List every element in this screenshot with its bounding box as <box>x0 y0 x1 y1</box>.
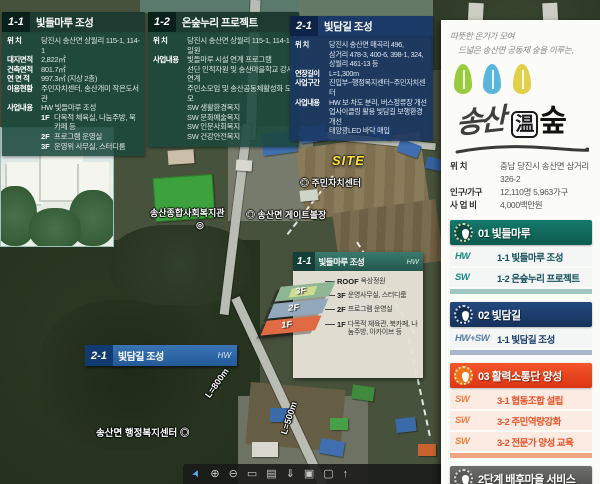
building <box>168 149 195 165</box>
share-icon[interactable]: ↑ <box>343 469 349 480</box>
map-marker-icon: ◎ <box>196 220 204 231</box>
blue-tree-icon <box>483 64 501 94</box>
panel-1-2: 1-2 온숲누리 프로젝트 위 치당진시 송산면 상월리 115-1, 114-… <box>148 12 299 147</box>
section-01: 01 빛들마루 HW 1-1 빛들마루 조성 SW 1-2 온숲누리 프로젝트 <box>450 220 592 294</box>
panel-number: 1-1 <box>2 12 30 32</box>
info-row-population: 인구/가구 12,110명 5,963가구 <box>450 186 592 199</box>
tree-logo-icons <box>454 64 592 96</box>
map-bar-2-1: 2-1 빛담길 조성 HW <box>85 345 237 366</box>
map-marker-icon: ◎ <box>246 210 255 220</box>
section-divider <box>450 350 592 355</box>
logo-on-character: 温 <box>511 111 538 138</box>
image-icon[interactable]: ▣ <box>304 469 314 480</box>
map-marker-icon: ◎ <box>300 178 309 188</box>
summary-sidebar: 따뜻한 온기가 모여 드넓은 송산면 공동체 숲을 이루는, 송산 温 숲 위 … <box>441 20 600 484</box>
section-01-header: 01 빛들마루 <box>450 220 592 245</box>
songsan-onsup-logo: 송산 温 숲 <box>456 96 592 140</box>
section-divider <box>450 453 592 458</box>
panel-title: 빛들마루 조성 <box>30 12 145 32</box>
yellow-tree-icon <box>513 64 531 94</box>
section-02-header: 02 빛담길 <box>450 302 592 327</box>
village-area <box>298 0 433 16</box>
popup-number: 1-1 <box>293 252 315 271</box>
logo-underline-swash <box>454 142 592 160</box>
leaf-drop-badge-icon <box>454 223 473 242</box>
panel-title: 빛담길 조성 <box>318 16 433 36</box>
photo-building <box>41 150 83 200</box>
zoom-in-icon[interactable]: ⊕ <box>210 469 219 480</box>
section-stage2-header: 2단계 배후마을 서비스 <box>450 466 592 484</box>
logo-sup-character: 숲 <box>539 96 565 140</box>
save-icon[interactable]: ⇓ <box>286 469 295 480</box>
section-03-header: 03 활력소통단 양성 <box>450 363 592 388</box>
tagline-line1: 따뜻한 온기가 모여 <box>450 30 592 42</box>
flame-badge-icon <box>454 366 473 385</box>
building <box>330 418 348 430</box>
section-row: HW 1-1 빛들마루 조성 <box>450 247 592 266</box>
map-marker-icon: ◎ <box>180 428 190 439</box>
info-row-location: 위 치 충남 당진시 송산면 삼거리 326-2 <box>450 160 592 186</box>
plan-poster: SITE ◎ 주민자치센터 송산종합사회복지관 ◎ ◎ 송산면 게이트볼장 송산… <box>0 0 600 484</box>
panel-number: 2-1 <box>290 16 318 36</box>
floor-row: 1F 다목적 체육관, 북카페, 나눔주방, 아카이브 등 <box>325 321 420 337</box>
panel-body: 위 치당진시 송산면 매곡리 496, 삼거리 478-3, 400-6, 39… <box>290 36 433 141</box>
image-viewer-toolbar[interactable]: ➤ ⊕ ⊖ ▭ ▤ ⇓ ▣ ▢ ↑ <box>183 464 465 484</box>
section-divider <box>450 289 592 294</box>
section-02: 02 빛담길 HW+SW 1-1 빛담길 조성 <box>450 302 592 355</box>
flame-badge-icon <box>454 469 473 484</box>
label-gateball-field: ◎ 송산면 게이트볼장 <box>246 208 326 221</box>
map-bar-title: 빛담길 조성 <box>113 345 212 366</box>
section-row: HW+SW 1-1 빛담길 조성 <box>450 329 592 348</box>
panel-header: 1-1 빛들마루 조성 <box>2 12 145 32</box>
copy-page-icon[interactable]: ▤ <box>266 469 276 480</box>
logo-script-text: 송산 <box>455 95 504 142</box>
floor-exploded-diagram: 3F 2F 1F <box>269 284 329 354</box>
building <box>395 417 416 433</box>
popup-title: 빛들마루 조성 <box>315 252 402 271</box>
site-label: SITE <box>332 153 365 168</box>
panel-1-1: 1-1 빛들마루 조성 위 치당진시 송산면 상월리 115-1, 114-1 … <box>2 12 145 156</box>
zoom-out-icon[interactable]: ⊖ <box>229 469 238 480</box>
fullscreen-icon[interactable]: ▢ <box>323 469 333 480</box>
popup-tag: HW <box>403 252 424 271</box>
tagline-line2: 드넓은 송산면 공동체 숲을 이루는, <box>458 44 592 56</box>
pointer-icon[interactable]: ➤ <box>191 468 204 480</box>
section-row: SW 3-1 협동조합 설립 <box>450 390 592 409</box>
building <box>418 444 436 456</box>
map-popup-1-1: 1-1 빛들마루 조성 HW ROOF 옥상정원 3F 운영사무실, 스터디룸 … <box>293 252 423 378</box>
panel-2-1: 2-1 빛담길 조성 위 치당진시 송산면 매곡리 496, 삼거리 478-3… <box>290 16 433 141</box>
section-03: 03 활력소통단 양성 SW 3-1 협동조합 설립 SW 3-2 주민역량강화… <box>450 363 592 458</box>
floor-row: 3F 운영사무실, 스터디룸 <box>325 292 420 300</box>
section-row: SW 1-2 온숲누리 프로젝트 <box>450 268 592 287</box>
green-tree-icon <box>454 64 472 94</box>
leaf-drop-badge-icon <box>454 305 473 324</box>
photo-tree <box>29 208 81 247</box>
label-welfare-center: 송산종합사회복지관 <box>150 206 225 219</box>
info-row-budget: 사 업 비 4,000백만원 <box>450 199 592 212</box>
panel-number: 1-2 <box>148 12 176 32</box>
panel-body: 위 치당진시 송산면 상월리 115-1, 114-1 일원 사업내용빛들마루 … <box>148 32 299 147</box>
panel-header: 1-2 온숲누리 프로젝트 <box>148 12 299 32</box>
building <box>299 189 318 202</box>
section-row: SW 3-2 주민역량강화 <box>450 411 592 430</box>
building <box>236 159 253 171</box>
building <box>252 442 278 457</box>
fit-width-icon[interactable]: ▭ <box>247 469 257 480</box>
label-admin-welfare-center: 송산면 행정복지센터 ◎ <box>96 425 189 439</box>
section-row: SW 3-2 전문가 양성 교육 <box>450 432 592 451</box>
building <box>351 385 375 402</box>
label-community-center: ◎ 주민자치센터 <box>300 176 361 189</box>
panel-body: 위 치당진시 송산면 상월리 115-1, 114-1 대지면적2,822㎡ 건… <box>2 32 145 156</box>
section-stage2: 2단계 배후마을 서비스 SW 찾아가는 온숲활력소통단 <box>450 466 592 484</box>
map-bar-tag: HW <box>212 345 237 366</box>
floor-row: 2F 프로그램 운영실 <box>325 306 420 314</box>
floor-row: ROOF 옥상정원 <box>325 278 420 286</box>
panel-title: 온숲누리 프로젝트 <box>176 12 299 32</box>
popup-header: 1-1 빛들마루 조성 HW <box>293 252 423 271</box>
panel-header: 2-1 빛담길 조성 <box>290 16 433 36</box>
map-bar-number: 2-1 <box>85 345 113 366</box>
